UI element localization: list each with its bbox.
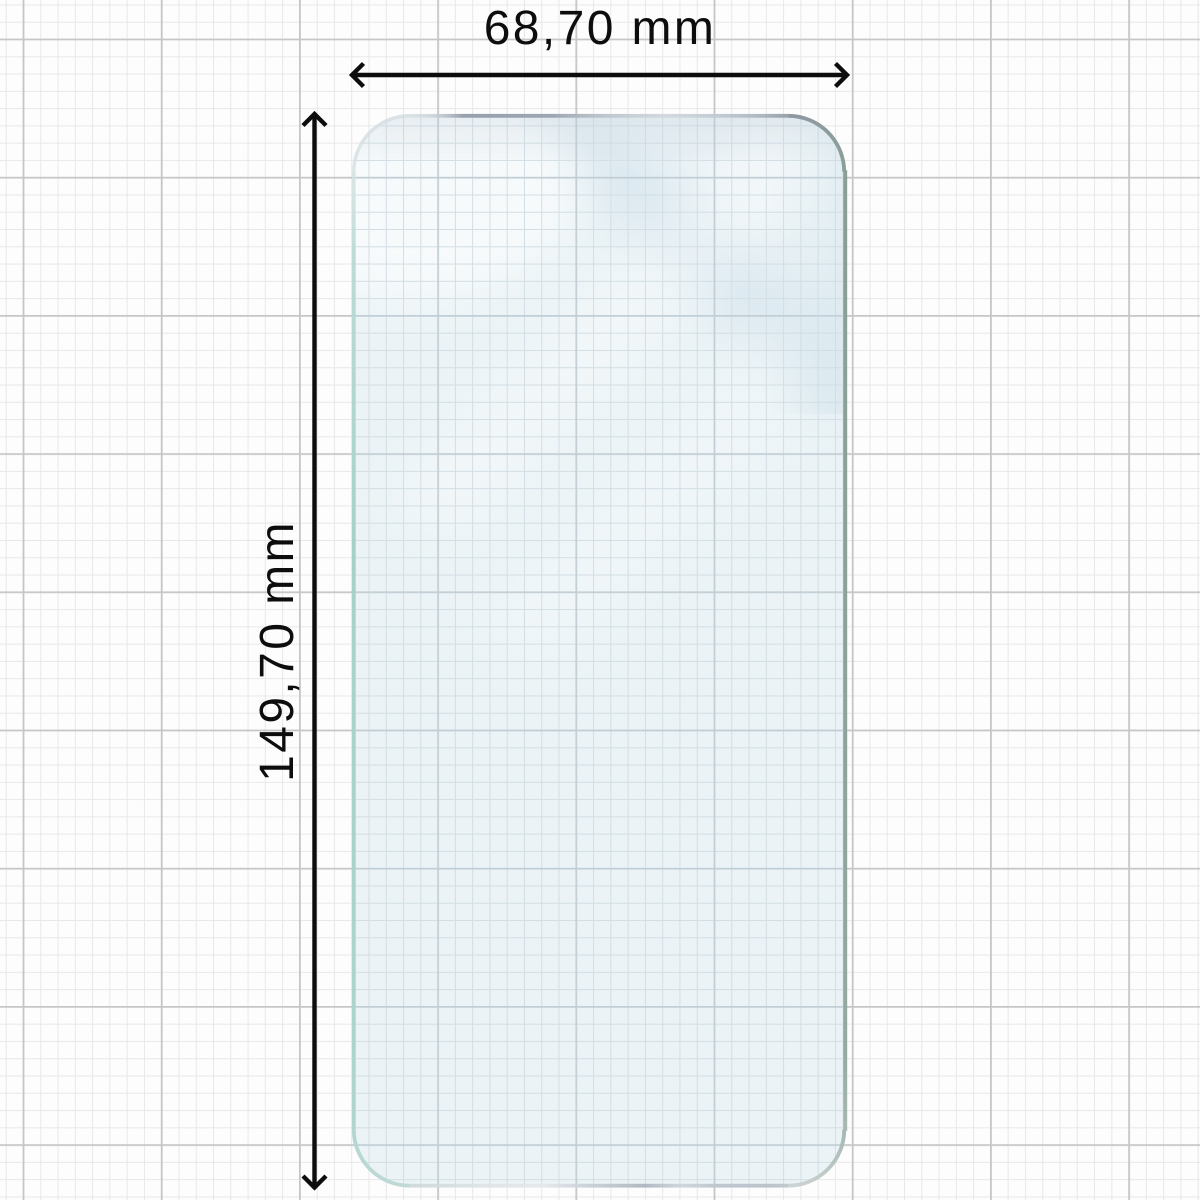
svg-text:68,70 mm: 68,70 mm — [484, 2, 717, 55]
svg-text:149,70 mm: 149,70 mm — [251, 520, 304, 782]
